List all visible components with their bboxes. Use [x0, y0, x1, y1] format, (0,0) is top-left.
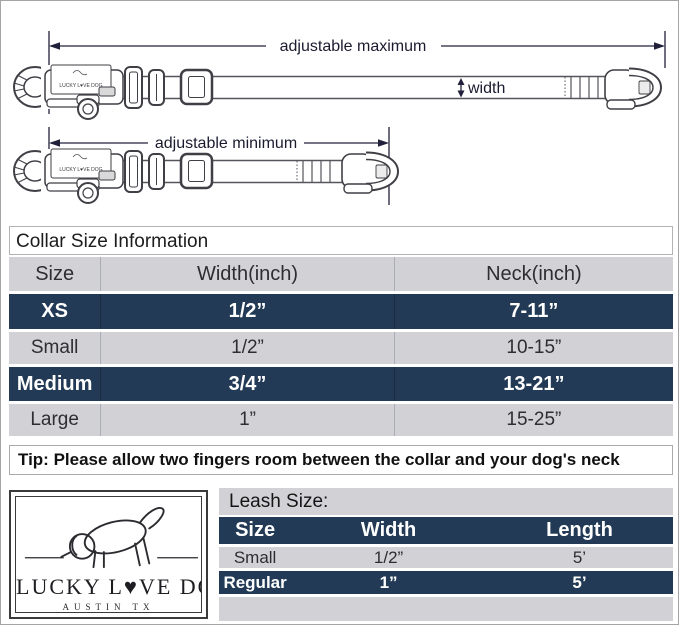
collar-table-header-row: Size Width(inch) Neck(inch)	[9, 257, 673, 291]
collar-min-illustration	[14, 149, 398, 203]
leash-table-title: Leash Size:	[219, 488, 673, 515]
width-label: width	[467, 80, 505, 97]
table-row-xs: XS 1/2” 7-11”	[9, 294, 673, 329]
adjustable-minimum-label: adjustable minimum	[155, 135, 297, 152]
header-width: Width	[291, 517, 486, 544]
cell-neck: 7-11”	[395, 294, 673, 329]
cell-neck: 15-25”	[395, 404, 673, 436]
cell-size: Small	[219, 547, 291, 568]
header-length: Length	[486, 517, 673, 544]
brand-logo-inner: LUCKY L♥VE DOG AUSTIN TX	[15, 496, 202, 613]
collar-diagram: LUCKY L♥VE DOG	[1, 1, 679, 225]
brand-location: AUSTIN TX	[16, 602, 201, 612]
cell-length: 5’	[486, 547, 673, 568]
cell-size: Regular	[219, 571, 291, 594]
cell-width: 1”	[291, 571, 486, 594]
table-row-small: Small 1/2” 10-15”	[9, 332, 673, 364]
leash-row-small: Small 1/2” 5’	[219, 547, 673, 568]
table-row-medium: Medium 3/4” 13-21”	[9, 367, 673, 401]
cell-width: 3/4”	[101, 367, 394, 401]
cell-neck: 13-21”	[395, 367, 673, 401]
header-neck: Neck(inch)	[395, 257, 673, 291]
brand-logo-box: LUCKY L♥VE DOG AUSTIN TX	[9, 490, 208, 619]
cell-size: Large	[9, 404, 101, 436]
collar-table-title: Collar Size Information	[9, 226, 673, 255]
product-size-chart: LUCKY L♥VE DOG	[0, 0, 679, 625]
collar-size-table: Collar Size Information Size Width(inch)…	[9, 226, 673, 475]
leash-size-table: Leash Size: Size Width Length Small 1/2”…	[219, 488, 673, 621]
cell-size: XS	[9, 294, 101, 329]
cell-width: 1/2”	[291, 547, 486, 568]
cell-width: 1”	[101, 404, 394, 436]
cell-size: Small	[9, 332, 101, 364]
adjustable-maximum-label: adjustable maximum	[280, 38, 427, 55]
collar-max-illustration	[14, 65, 661, 119]
leash-row-regular: Regular 1” 5’	[219, 571, 673, 594]
cell-length: 5’	[486, 571, 673, 594]
cell-width: 1/2”	[101, 332, 394, 364]
leash-row-empty	[219, 597, 673, 621]
leash-header-row: Size Width Length	[219, 517, 673, 544]
cell-width: 1/2”	[101, 294, 394, 329]
header-size: Size	[9, 257, 101, 291]
table-row-large: Large 1” 15-25”	[9, 404, 673, 436]
header-width: Width(inch)	[101, 257, 394, 291]
brand-name: LUCKY L♥VE DOG	[16, 574, 201, 600]
cell-neck: 10-15”	[395, 332, 673, 364]
dog-logo-icon	[16, 497, 202, 575]
header-size: Size	[219, 517, 291, 544]
fit-tip-text: Tip: Please allow two fingers room betwe…	[9, 445, 673, 475]
cell-size: Medium	[9, 367, 101, 401]
